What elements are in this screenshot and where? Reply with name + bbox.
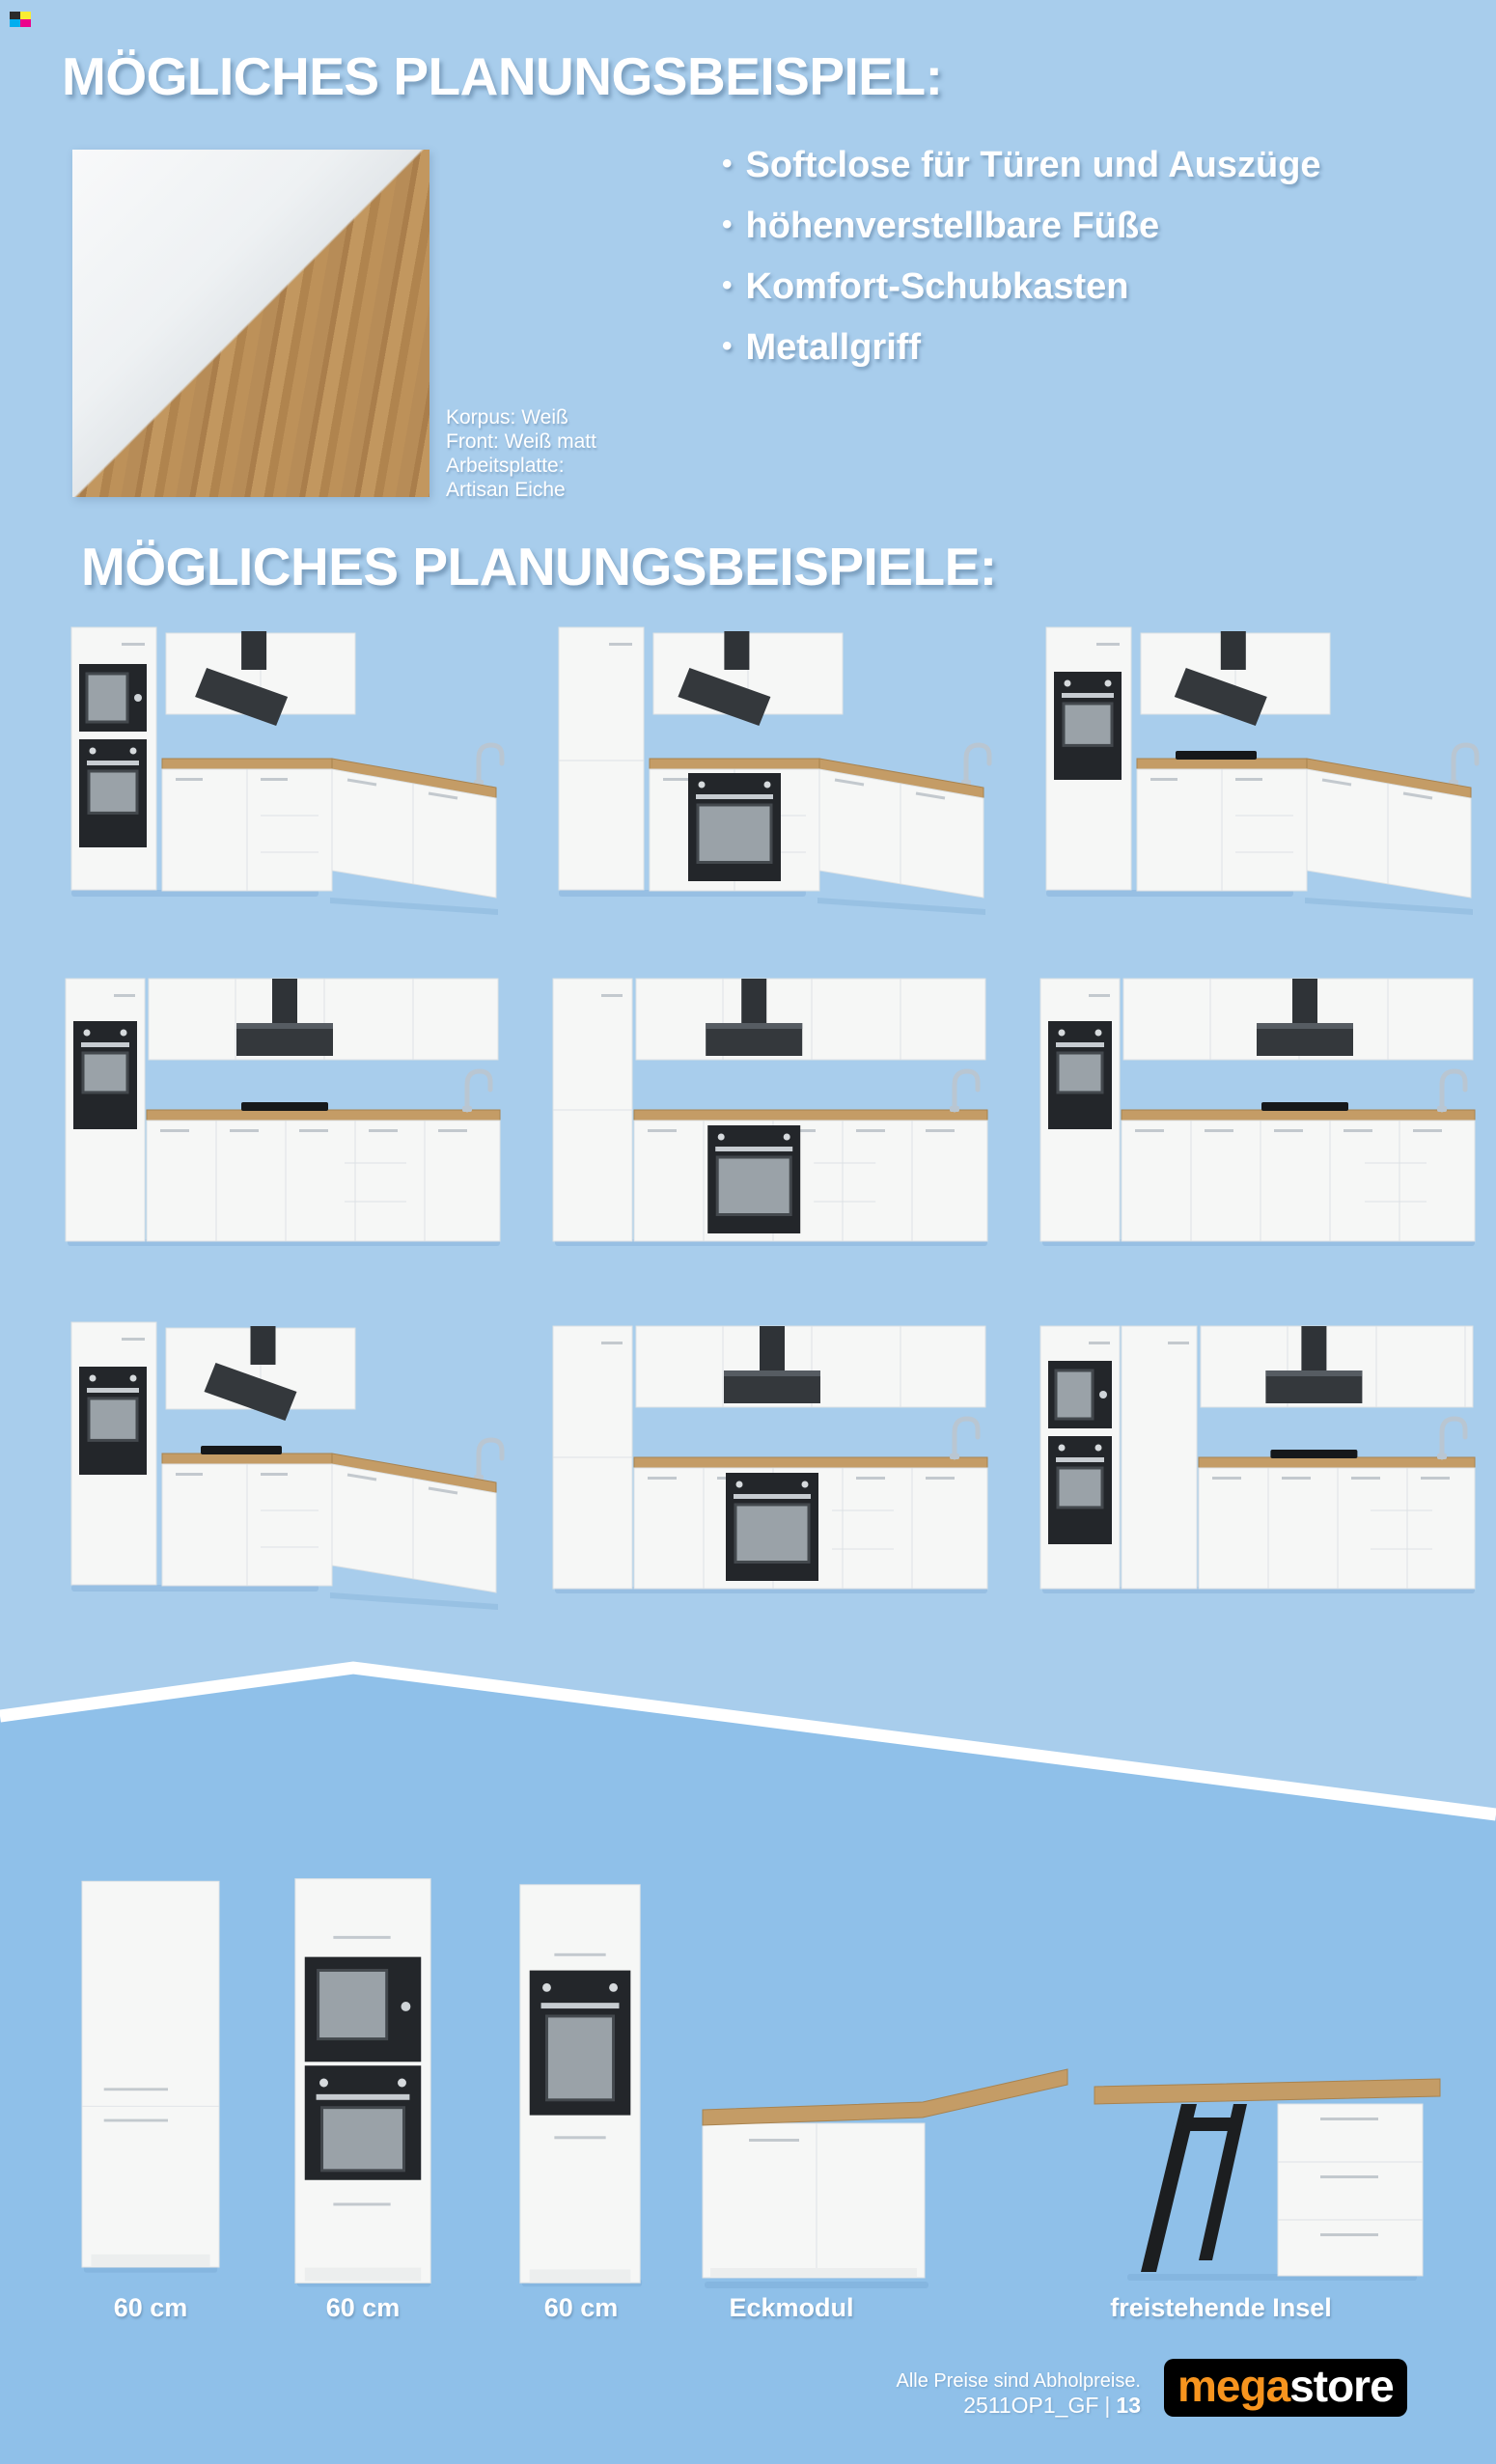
reg-color-3: [10, 19, 20, 27]
mw-oven-tower-image: [286, 1872, 440, 2293]
kitchen-example-1: [58, 618, 512, 917]
feature-list: •Softclose für Türen und Auszüge •höhenv…: [722, 145, 1321, 388]
page-number: 13: [1116, 2393, 1141, 2418]
fridge-tower-image: [64, 1865, 237, 2289]
material-caption: Korpus: Weiß Front: Weiß matt Arbeitspla…: [446, 405, 596, 502]
reg-color-4: [20, 19, 31, 27]
kitchen-example-2: [545, 618, 999, 917]
feature-item: •höhenverstellbare Füße: [722, 206, 1321, 266]
material-caption-line: Korpus: Weiß: [446, 405, 596, 429]
kitchen-example-2-image: [545, 618, 999, 917]
bullet-icon: •: [722, 148, 733, 180]
kitchen-example-5-image: [545, 965, 999, 1264]
footer-code: 2511OP1_GF: [963, 2393, 1098, 2418]
feature-text: höhenverstellbare Füße: [746, 206, 1160, 247]
unit-label: Eckmodul: [676, 2293, 907, 2323]
kitchen-example-7: [58, 1313, 512, 1612]
island-image: [1089, 2062, 1446, 2293]
kitchen-example-9: [1033, 1313, 1486, 1612]
material-swatch-image: [72, 150, 429, 497]
bullet-icon: •: [722, 208, 733, 241]
flyer-page: MÖGLICHES PLANUNGSBEISPIEL: Korpus: Weiß…: [0, 0, 1496, 2464]
footer-code-line: 2511OP1_GF|13: [897, 2393, 1141, 2419]
megastore-logo: megastore: [1164, 2359, 1407, 2417]
bullet-icon: •: [722, 330, 733, 363]
footer-note: Alle Preise sind Abholpreise. 2511OP1_GF…: [897, 2369, 1141, 2419]
bullet-icon: •: [722, 269, 733, 302]
section-title: MÖGLICHES PLANUNGSBEISPIELE:: [81, 540, 997, 594]
reg-color-1: [10, 12, 20, 19]
kitchen-example-9-image: [1033, 1313, 1486, 1612]
feature-item: •Metallgriff: [722, 327, 1321, 388]
oven-tower-image: [509, 1878, 653, 2293]
kitchen-example-8: [545, 1313, 999, 1612]
feature-item: •Softclose für Türen und Auszüge: [722, 145, 1321, 206]
reg-color-2: [20, 12, 31, 19]
unit-image-mw-oven-tower: [286, 1872, 440, 2293]
kitchen-example-6-image: [1033, 965, 1486, 1264]
kitchen-examples-grid: [58, 618, 1486, 1617]
kitchen-example-3: [1033, 618, 1486, 917]
material-caption-line: Arbeitsplatte:: [446, 454, 596, 478]
footer-divider: |: [1098, 2393, 1116, 2418]
feature-text: Metallgriff: [746, 327, 922, 369]
material-caption-line: Front: Weiß matt: [446, 429, 596, 454]
corner-module-image: [691, 2062, 1077, 2293]
kitchen-example-4-image: [58, 965, 512, 1264]
unit-label: 60 cm: [509, 2293, 653, 2323]
kitchen-example-7-image: [58, 1313, 512, 1612]
kitchen-example-6: [1033, 965, 1486, 1264]
feature-item: •Komfort-Schubkasten: [722, 266, 1321, 327]
logo-mega: mega: [1177, 2361, 1289, 2411]
print-registration-mark: [10, 12, 31, 27]
unit-label: freistehende Insel: [1047, 2293, 1395, 2323]
kitchen-example-5: [545, 965, 999, 1264]
logo-store: store: [1289, 2361, 1393, 2411]
page-title: MÖGLICHES PLANUNGSBEISPIEL:: [62, 50, 942, 103]
unit-image-island: [1089, 2062, 1446, 2293]
unit-label: 60 cm: [64, 2293, 237, 2323]
kitchen-example-3-image: [1033, 618, 1486, 917]
material-caption-line: Artisan Eiche: [446, 478, 596, 502]
unit-label: 60 cm: [286, 2293, 440, 2323]
feature-text: Komfort-Schubkasten: [746, 266, 1129, 308]
unit-image-oven-tower: [509, 1878, 653, 2293]
feature-text: Softclose für Türen und Auszüge: [746, 145, 1321, 186]
kitchen-example-8-image: [545, 1313, 999, 1612]
unit-image-fridge-tower: [64, 1865, 237, 2289]
kitchen-example-4: [58, 965, 512, 1264]
unit-image-corner-module: [691, 2062, 1077, 2293]
kitchen-example-1-image: [58, 618, 512, 917]
footer-price-note: Alle Preise sind Abholpreise.: [897, 2369, 1141, 2393]
